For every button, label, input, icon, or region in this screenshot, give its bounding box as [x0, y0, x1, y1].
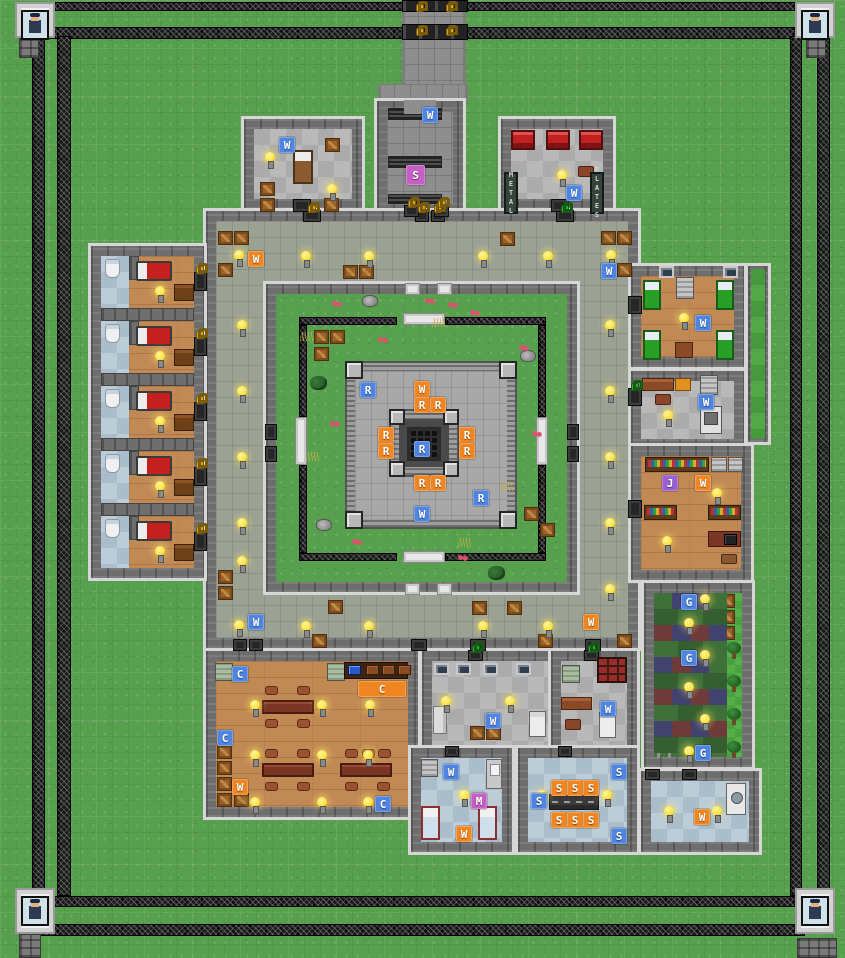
crop-segment [654, 609, 678, 625]
crop-segment [654, 673, 678, 689]
lock-icon [446, 28, 454, 36]
cell-door[interactable] [194, 402, 207, 421]
wooden-crate[interactable] [617, 263, 632, 277]
lamp[interactable] [711, 488, 723, 504]
zone-marker-W[interactable]: W [422, 107, 438, 123]
lamp[interactable] [542, 251, 554, 267]
bench[interactable] [721, 554, 737, 564]
zone-marker-S[interactable]: S [551, 812, 567, 828]
lamp[interactable] [604, 320, 616, 336]
flowers-icon [458, 554, 468, 562]
garden-crop-row[interactable] [654, 705, 727, 721]
lamp[interactable] [683, 618, 695, 634]
wooden-crate[interactable] [325, 138, 340, 152]
press-machine[interactable] [511, 130, 535, 150]
lamp[interactable] [154, 416, 166, 432]
wooden-crate[interactable] [540, 523, 555, 537]
wooden-crate[interactable] [314, 330, 329, 344]
zone-marker-R[interactable]: R [378, 443, 394, 459]
dining-table[interactable] [262, 763, 314, 777]
wooden-crate[interactable] [260, 182, 275, 196]
wooden-crate[interactable] [217, 777, 232, 791]
stool[interactable] [345, 749, 358, 758]
desk[interactable] [675, 342, 693, 358]
prison-bed[interactable] [136, 326, 172, 346]
door[interactable] [558, 746, 572, 757]
lamp[interactable] [233, 620, 245, 636]
lock-icon [561, 205, 569, 213]
door[interactable] [405, 283, 420, 295]
wooden-crate[interactable] [218, 586, 233, 600]
zone-marker-C[interactable]: C [375, 796, 391, 812]
yard-fence [538, 465, 546, 553]
zone-marker-W[interactable]: W [456, 826, 472, 842]
zone-marker-W[interactable]: W [232, 779, 248, 795]
zone-marker-M[interactable]: M [471, 793, 487, 809]
wooden-crate[interactable] [312, 634, 327, 648]
side-yard-floor [751, 269, 765, 439]
crop-segment [654, 689, 672, 705]
stool[interactable] [345, 782, 358, 791]
zone-marker-W[interactable]: W [414, 381, 430, 397]
door[interactable] [682, 769, 697, 780]
machine[interactable] [700, 375, 718, 395]
cell-door[interactable] [194, 467, 207, 486]
lamp[interactable] [440, 696, 452, 712]
counter[interactable] [642, 378, 674, 391]
door[interactable] [411, 639, 427, 651]
lamp[interactable] [300, 621, 312, 637]
storage-rack[interactable] [597, 657, 627, 683]
crop-segment [703, 673, 727, 689]
cell-divider-wall [101, 308, 194, 321]
shower-drain[interactable] [549, 794, 599, 810]
lamp[interactable] [504, 696, 516, 712]
lock-icon [588, 645, 596, 653]
toilet[interactable] [105, 389, 120, 408]
wall-stub [806, 38, 826, 58]
lamp[interactable] [236, 452, 248, 468]
bookshelf[interactable] [644, 505, 677, 520]
door[interactable] [233, 639, 247, 651]
door[interactable] [265, 446, 277, 462]
guard-tower[interactable] [15, 2, 55, 38]
crop-segment [709, 721, 727, 737]
zone-marker-R[interactable]: R [430, 475, 446, 491]
cell-door[interactable] [194, 337, 207, 356]
door[interactable] [437, 283, 452, 295]
wall-stub [19, 934, 41, 958]
cell-chest[interactable] [174, 414, 194, 431]
wooden-crate[interactable] [524, 507, 539, 521]
zone-marker-C[interactable]: C [217, 730, 233, 746]
lamp[interactable] [236, 556, 248, 572]
lamp[interactable] [154, 481, 166, 497]
guard-icon [809, 906, 821, 919]
lock-icon [196, 526, 204, 534]
stove[interactable] [700, 406, 722, 434]
cell-divider-wall [101, 373, 194, 386]
pillar-icon [499, 361, 517, 379]
stool[interactable] [297, 749, 310, 758]
wooden-crate[interactable] [217, 745, 232, 759]
cell-chest[interactable] [174, 479, 194, 496]
perimeter-fence [57, 36, 71, 896]
flowers-icon [378, 336, 388, 344]
prison-bed[interactable] [136, 456, 172, 476]
lamp[interactable] [300, 251, 312, 267]
tower-window [21, 10, 49, 40]
tree-icon [726, 642, 742, 659]
zone-marker-C[interactable]: C [232, 666, 248, 682]
flowers-icon [352, 538, 362, 546]
wooden-crate[interactable] [234, 231, 249, 245]
lamp[interactable] [604, 452, 616, 468]
zone-marker-G[interactable]: G [681, 594, 697, 610]
stool[interactable] [297, 719, 310, 728]
yard-fence [538, 325, 546, 417]
lamp[interactable] [683, 682, 695, 698]
lamp[interactable] [364, 700, 376, 716]
lamp[interactable] [316, 700, 328, 716]
lamp[interactable] [154, 351, 166, 367]
counter[interactable] [561, 697, 592, 710]
door[interactable] [567, 424, 579, 440]
wooden-crate[interactable] [328, 600, 343, 614]
lock-icon [308, 205, 316, 213]
zone-marker-R[interactable]: R [430, 397, 446, 413]
washing-machine[interactable] [726, 783, 746, 815]
zone-marker-W[interactable]: W [698, 394, 714, 410]
stool[interactable] [265, 749, 278, 758]
wall-stub [797, 938, 837, 958]
crop-segment [654, 593, 672, 609]
machine[interactable] [711, 457, 727, 472]
wooden-crate[interactable] [617, 634, 632, 648]
crop-segment [709, 593, 727, 609]
zone-marker-W[interactable]: W [694, 809, 710, 825]
door[interactable] [567, 446, 579, 462]
dorm-bed[interactable] [643, 280, 661, 310]
zone-marker-W[interactable]: W [485, 713, 501, 729]
zone-marker-W[interactable]: W [695, 315, 711, 331]
door[interactable] [445, 746, 459, 757]
door[interactable] [437, 583, 452, 595]
flowers-icon [425, 297, 435, 305]
guard-tower[interactable] [795, 888, 835, 934]
food-tray[interactable] [398, 665, 411, 675]
lock-icon [631, 383, 639, 391]
wall-stub [19, 38, 39, 58]
crop-segment [709, 625, 727, 641]
lamp[interactable] [678, 313, 690, 329]
material-container[interactable]: METAL [504, 172, 518, 214]
yard-fence [299, 465, 307, 553]
lamp[interactable] [542, 621, 554, 637]
food-tray[interactable] [366, 665, 379, 675]
material-container[interactable]: PLATES [590, 172, 604, 214]
small-table[interactable] [655, 394, 671, 405]
zone-marker-R[interactable]: R [360, 382, 376, 398]
cell-chest[interactable] [174, 544, 194, 561]
perimeter-fence [790, 36, 802, 896]
wooden-crate[interactable] [218, 570, 233, 584]
lamp[interactable] [699, 650, 711, 666]
door[interactable] [628, 296, 642, 314]
door[interactable] [645, 769, 660, 780]
cell-chest[interactable] [174, 284, 194, 301]
lamp[interactable] [233, 250, 245, 266]
lamp[interactable] [363, 621, 375, 637]
perimeter-gate[interactable] [402, 0, 468, 12]
toilet[interactable] [105, 259, 120, 278]
stool[interactable] [265, 686, 278, 695]
medical-bed[interactable] [478, 806, 497, 840]
wooden-crate[interactable] [507, 601, 522, 615]
lamp[interactable] [604, 386, 616, 402]
zone-marker-R[interactable]: R [378, 427, 394, 443]
lamp[interactable] [326, 184, 338, 200]
bush-icon [310, 376, 327, 390]
guard-tower[interactable] [15, 888, 55, 934]
yard-gate[interactable] [536, 417, 548, 465]
lamp[interactable] [236, 386, 248, 402]
lamp[interactable] [249, 700, 261, 716]
flowers-icon [470, 309, 480, 317]
toilet[interactable] [105, 324, 120, 343]
lock-icon [196, 396, 204, 404]
stool[interactable] [297, 686, 310, 695]
food-tray[interactable] [382, 665, 395, 675]
pillar-icon [345, 511, 363, 529]
wooden-crate[interactable] [330, 330, 345, 344]
lamp[interactable] [458, 790, 470, 806]
zone-marker-R[interactable]: R [414, 397, 430, 413]
dining-table[interactable] [262, 700, 314, 714]
tree-icon [726, 708, 742, 725]
flowers-icon [519, 344, 529, 352]
wooden-crate[interactable] [260, 198, 275, 212]
zone-marker-S[interactable]: S [583, 812, 599, 828]
door[interactable] [405, 583, 420, 595]
lamp[interactable] [249, 750, 261, 766]
zone-marker-S[interactable]: S [567, 780, 583, 796]
small-table[interactable] [565, 719, 581, 730]
dry-grass-icon [458, 538, 472, 547]
guard-icon [29, 906, 41, 919]
lamp[interactable] [661, 536, 673, 552]
door[interactable] [628, 500, 642, 518]
zone-marker-S[interactable]: S [531, 793, 547, 809]
lamp[interactable] [236, 320, 248, 336]
prison-map: METALPLATESWSWWWWRWRRRRRRRRRRWWWJWGGGWWC… [0, 0, 845, 958]
lamp[interactable] [316, 797, 328, 813]
zone-marker-W[interactable]: W [248, 614, 264, 630]
lamp[interactable] [601, 790, 613, 806]
zone-marker-S[interactable]: S [551, 780, 567, 796]
zone-marker-W[interactable]: W [600, 701, 616, 717]
window-icon [456, 663, 471, 675]
lamp[interactable] [604, 584, 616, 600]
bush-icon [488, 566, 505, 580]
counter-orange[interactable] [675, 378, 691, 391]
lamp[interactable] [711, 806, 723, 822]
yard-gate[interactable] [403, 551, 445, 563]
cell-divider-wall [101, 438, 194, 451]
lamp[interactable] [264, 152, 276, 168]
pillar-icon [345, 361, 363, 379]
zone-marker-W[interactable]: W [279, 137, 295, 153]
lamp[interactable] [477, 621, 489, 637]
zone-marker-W[interactable]: W [601, 263, 617, 279]
zone-marker-S[interactable]: S [583, 780, 599, 796]
flowers-icon [532, 430, 542, 438]
lock-icon [446, 4, 454, 12]
zone-marker-J[interactable]: J [662, 475, 678, 491]
perimeter-fence [40, 896, 805, 907]
lamp[interactable] [236, 518, 248, 534]
window-icon [516, 663, 531, 675]
wooden-crate[interactable] [218, 263, 233, 277]
guard-tower[interactable] [795, 2, 835, 38]
zone-marker-W[interactable]: W [414, 506, 430, 522]
zone-marker-W[interactable]: W [566, 185, 582, 201]
sink[interactable] [486, 759, 502, 789]
bookshelf[interactable] [708, 505, 741, 520]
lock-icon [408, 200, 416, 208]
machine[interactable] [421, 759, 438, 777]
zone-marker-G[interactable]: G [681, 650, 697, 666]
wooden-crate[interactable] [472, 601, 487, 615]
lamp[interactable] [683, 746, 695, 762]
door[interactable] [265, 424, 277, 440]
lamp[interactable] [362, 797, 374, 813]
serving-fridge[interactable] [327, 663, 345, 681]
lamp[interactable] [662, 410, 674, 426]
wooden-crate[interactable] [470, 726, 485, 740]
zone-marker-S[interactable]: S [567, 812, 583, 828]
lamp[interactable] [249, 797, 261, 813]
lamp[interactable] [556, 170, 568, 186]
staff-bed[interactable] [293, 150, 313, 184]
wooden-crate[interactable] [218, 231, 233, 245]
rock-icon [316, 519, 332, 531]
serving-fridge[interactable] [215, 663, 233, 681]
lamp[interactable] [362, 750, 374, 766]
zone-marker-R[interactable]: R [459, 443, 475, 459]
prison-bed[interactable] [136, 391, 172, 411]
wooden-crate[interactable] [343, 265, 358, 279]
zone-marker-R[interactable]: R [414, 441, 430, 457]
window-icon [659, 266, 674, 278]
computer-desk[interactable] [708, 531, 741, 547]
lock-icon [196, 331, 204, 339]
wooden-crate[interactable] [234, 793, 249, 807]
zone-marker-W[interactable]: W [583, 614, 599, 630]
tower-window [801, 896, 829, 926]
zone-marker-S[interactable]: S [611, 828, 627, 844]
window-icon [483, 663, 498, 675]
wooden-crate[interactable] [500, 232, 515, 246]
zone-marker-R[interactable]: R [414, 475, 430, 491]
bookshelf[interactable] [645, 457, 709, 472]
stool[interactable] [378, 749, 391, 758]
serving-fridge[interactable] [562, 665, 580, 683]
lamp[interactable] [316, 750, 328, 766]
stool[interactable] [265, 719, 278, 728]
dorm-bed[interactable] [716, 330, 734, 360]
zone-marker-W[interactable]: W [695, 475, 711, 491]
wooden-crate[interactable] [217, 793, 232, 807]
zone-marker-W[interactable]: W [248, 251, 264, 267]
prison-bed[interactable] [136, 261, 172, 281]
toilet[interactable] [105, 454, 120, 473]
stool[interactable] [377, 782, 390, 791]
lamp[interactable] [154, 546, 166, 562]
order-screen[interactable] [348, 665, 361, 675]
lamp[interactable] [477, 251, 489, 267]
toilet[interactable] [105, 519, 120, 538]
machine[interactable] [676, 277, 694, 299]
crop-segment [703, 609, 727, 625]
zone-marker-S[interactable]: S [406, 165, 425, 185]
cell-door[interactable] [194, 272, 207, 291]
door[interactable] [249, 639, 263, 651]
zone-marker-S[interactable]: S [611, 764, 627, 780]
stool[interactable] [265, 782, 278, 791]
zone-marker-W[interactable]: W [443, 764, 459, 780]
press-machine[interactable] [579, 130, 603, 150]
garden-crop-row[interactable] [654, 721, 727, 737]
lock-icon [438, 200, 446, 208]
window-icon [434, 663, 449, 675]
wooden-crate[interactable] [601, 231, 616, 245]
guard-icon [29, 20, 41, 33]
lamp[interactable] [154, 286, 166, 302]
dorm-bed[interactable] [716, 280, 734, 310]
lamp[interactable] [663, 806, 675, 822]
wooden-crate[interactable] [314, 347, 329, 361]
prison-bed[interactable] [136, 521, 172, 541]
zone-marker-R[interactable]: R [473, 490, 489, 506]
lamp[interactable] [699, 714, 711, 730]
wooden-crate[interactable] [617, 231, 632, 245]
lock-icon [196, 266, 204, 274]
zone-marker-C[interactable]: C [358, 681, 406, 697]
guard-icon [809, 20, 821, 33]
zone-marker-R[interactable]: R [459, 427, 475, 443]
press-machine[interactable] [546, 130, 570, 150]
stool[interactable] [297, 782, 310, 791]
machine[interactable] [728, 457, 743, 472]
lamp[interactable] [363, 251, 375, 267]
pillar-icon [499, 511, 517, 529]
zone-marker-G[interactable]: G [695, 745, 711, 761]
lamp[interactable] [699, 594, 711, 610]
perimeter-fence [817, 36, 830, 896]
cell-chest[interactable] [174, 349, 194, 366]
wooden-crate[interactable] [217, 761, 232, 775]
lock-icon [196, 461, 204, 469]
lamp[interactable] [604, 518, 616, 534]
medical-bed[interactable] [421, 806, 440, 840]
dorm-bed[interactable] [643, 330, 661, 360]
fridge[interactable] [529, 711, 546, 737]
pillar-small-icon [389, 409, 405, 425]
cell-door[interactable] [194, 532, 207, 551]
perimeter-gate[interactable] [402, 24, 468, 40]
yard-fence [299, 317, 397, 325]
